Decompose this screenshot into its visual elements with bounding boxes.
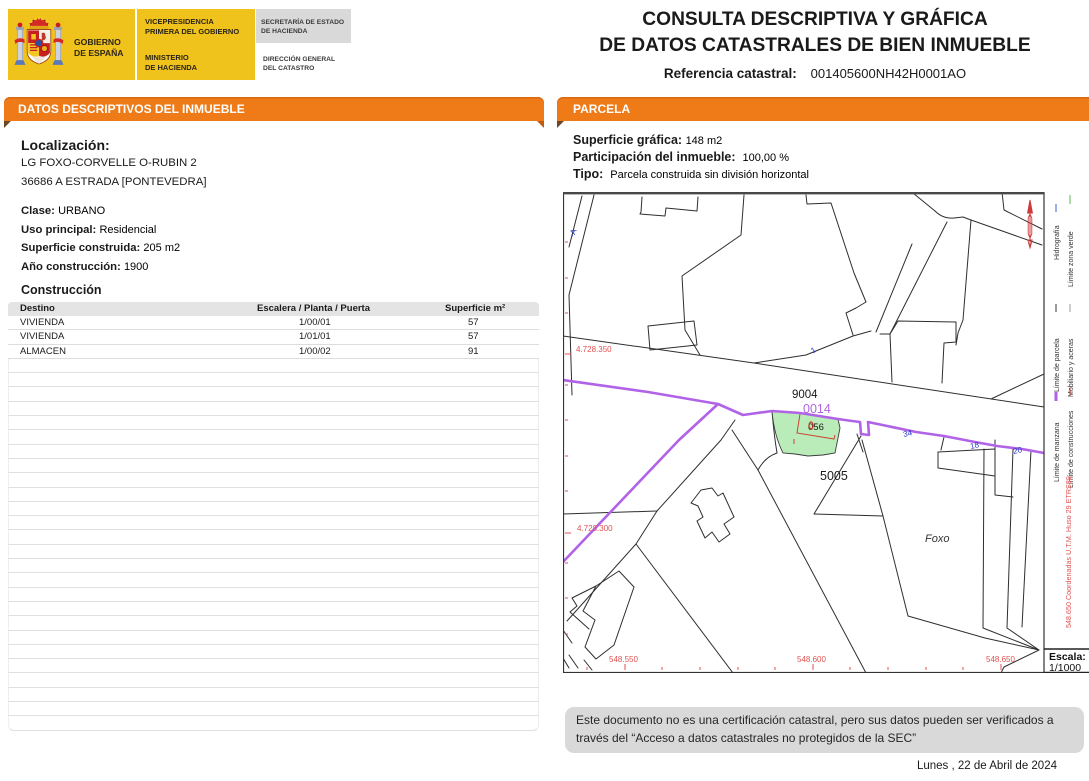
svg-text:548.650: 548.650 [986,655,1015,664]
svg-text:Hidrografía: Hidrografía [1054,225,1061,260]
svg-text:Foxo: Foxo [925,533,949,545]
svg-text:4.728.300: 4.728.300 [577,524,613,533]
svg-text:9004: 9004 [792,389,818,401]
svg-text:Límite zona verde: Límite zona verde [1068,231,1075,287]
svg-text:0014: 0014 [803,402,831,416]
svg-text:548.650 Coordenadas U.T.M. Hus: 548.650 Coordenadas U.T.M. Huso 29 ETRS8… [1064,476,1073,628]
svg-text:4.728.350: 4.728.350 [576,345,612,354]
svg-text:Límite de parcela: Límite de parcela [1054,338,1061,392]
svg-text:Mobiliario y aceras: Mobiliario y aceras [1068,338,1075,397]
svg-text:Límite de manzana: Límite de manzana [1054,422,1061,482]
svg-text:5005: 5005 [820,469,848,483]
svg-text:548.600: 548.600 [797,655,826,664]
svg-text:548.550: 548.550 [609,655,638,664]
svg-text:056: 056 [808,422,824,433]
svg-text:1/1000: 1/1000 [1049,662,1081,673]
